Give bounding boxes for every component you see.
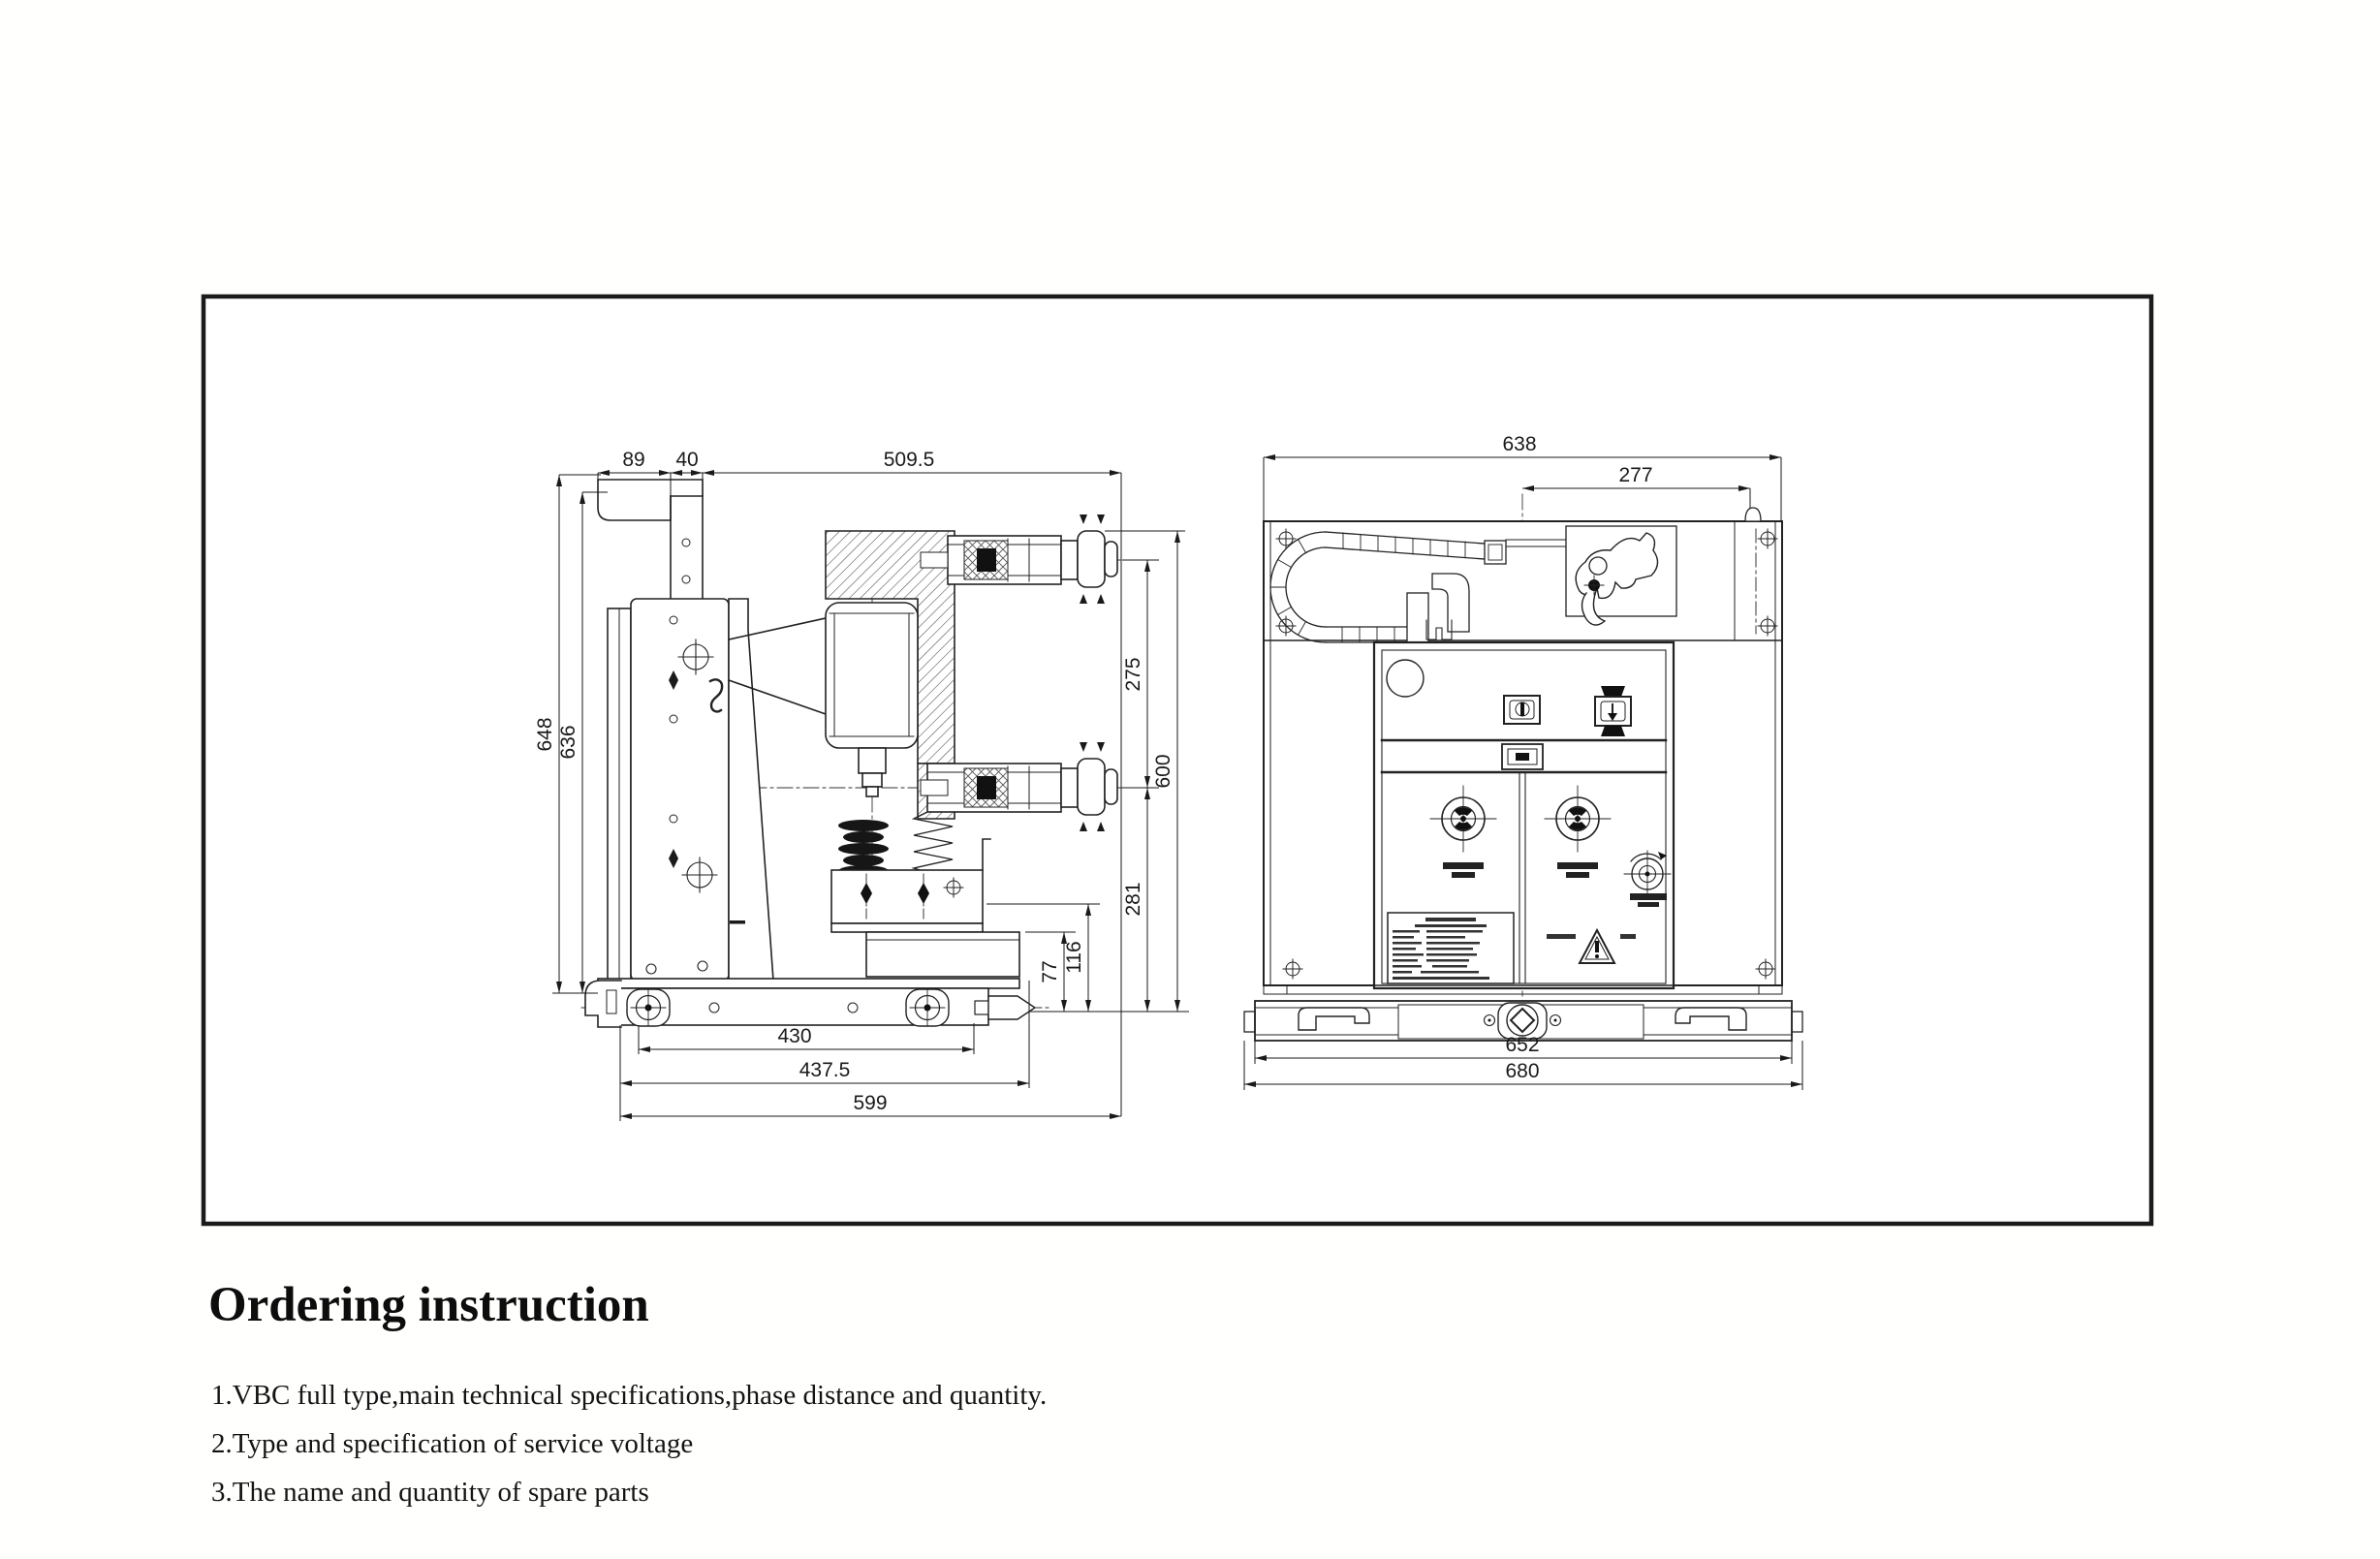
ordering-item-3: 3.The name and quantity of spare parts <box>211 1477 1568 1509</box>
dim-77: 77 <box>1039 960 1061 982</box>
nameplate <box>1388 913 1514 983</box>
dim-277: 277 <box>1618 464 1652 486</box>
front-view <box>1244 494 1802 1041</box>
catalog-page: 89 40 509.5 648 636 275 600 281 116 77 4… <box>0 0 2380 1559</box>
bellows <box>838 820 889 877</box>
dim-116: 116 <box>1063 941 1085 973</box>
ordering-item-1: 1.VBC full type,main technical specifica… <box>211 1380 1568 1412</box>
dim-89: 89 <box>622 449 644 471</box>
dim-652: 652 <box>1505 1034 1539 1056</box>
wheel <box>627 989 670 1026</box>
dim-437-5: 437.5 <box>799 1059 851 1081</box>
dim-680: 680 <box>1505 1060 1539 1082</box>
dim-281: 281 <box>1122 882 1144 916</box>
dim-509-5: 509.5 <box>884 449 935 471</box>
dim-600: 600 <box>1152 754 1174 788</box>
dim-40: 40 <box>675 449 698 471</box>
wheel <box>906 989 949 1026</box>
ordering-heading: Ordering instruction <box>208 1277 649 1333</box>
dim-638: 638 <box>1502 433 1536 455</box>
latch <box>1502 744 1543 769</box>
ordering-list: 1.VBC full type,main technical specifica… <box>211 1380 1568 1525</box>
dim-648: 648 <box>534 717 556 751</box>
ordering-item-2: 2.Type and specification of service volt… <box>211 1428 1568 1460</box>
dim-636: 636 <box>557 725 579 759</box>
dim-599: 599 <box>853 1092 887 1114</box>
dim-430: 430 <box>777 1025 811 1047</box>
dim-275: 275 <box>1122 657 1144 691</box>
